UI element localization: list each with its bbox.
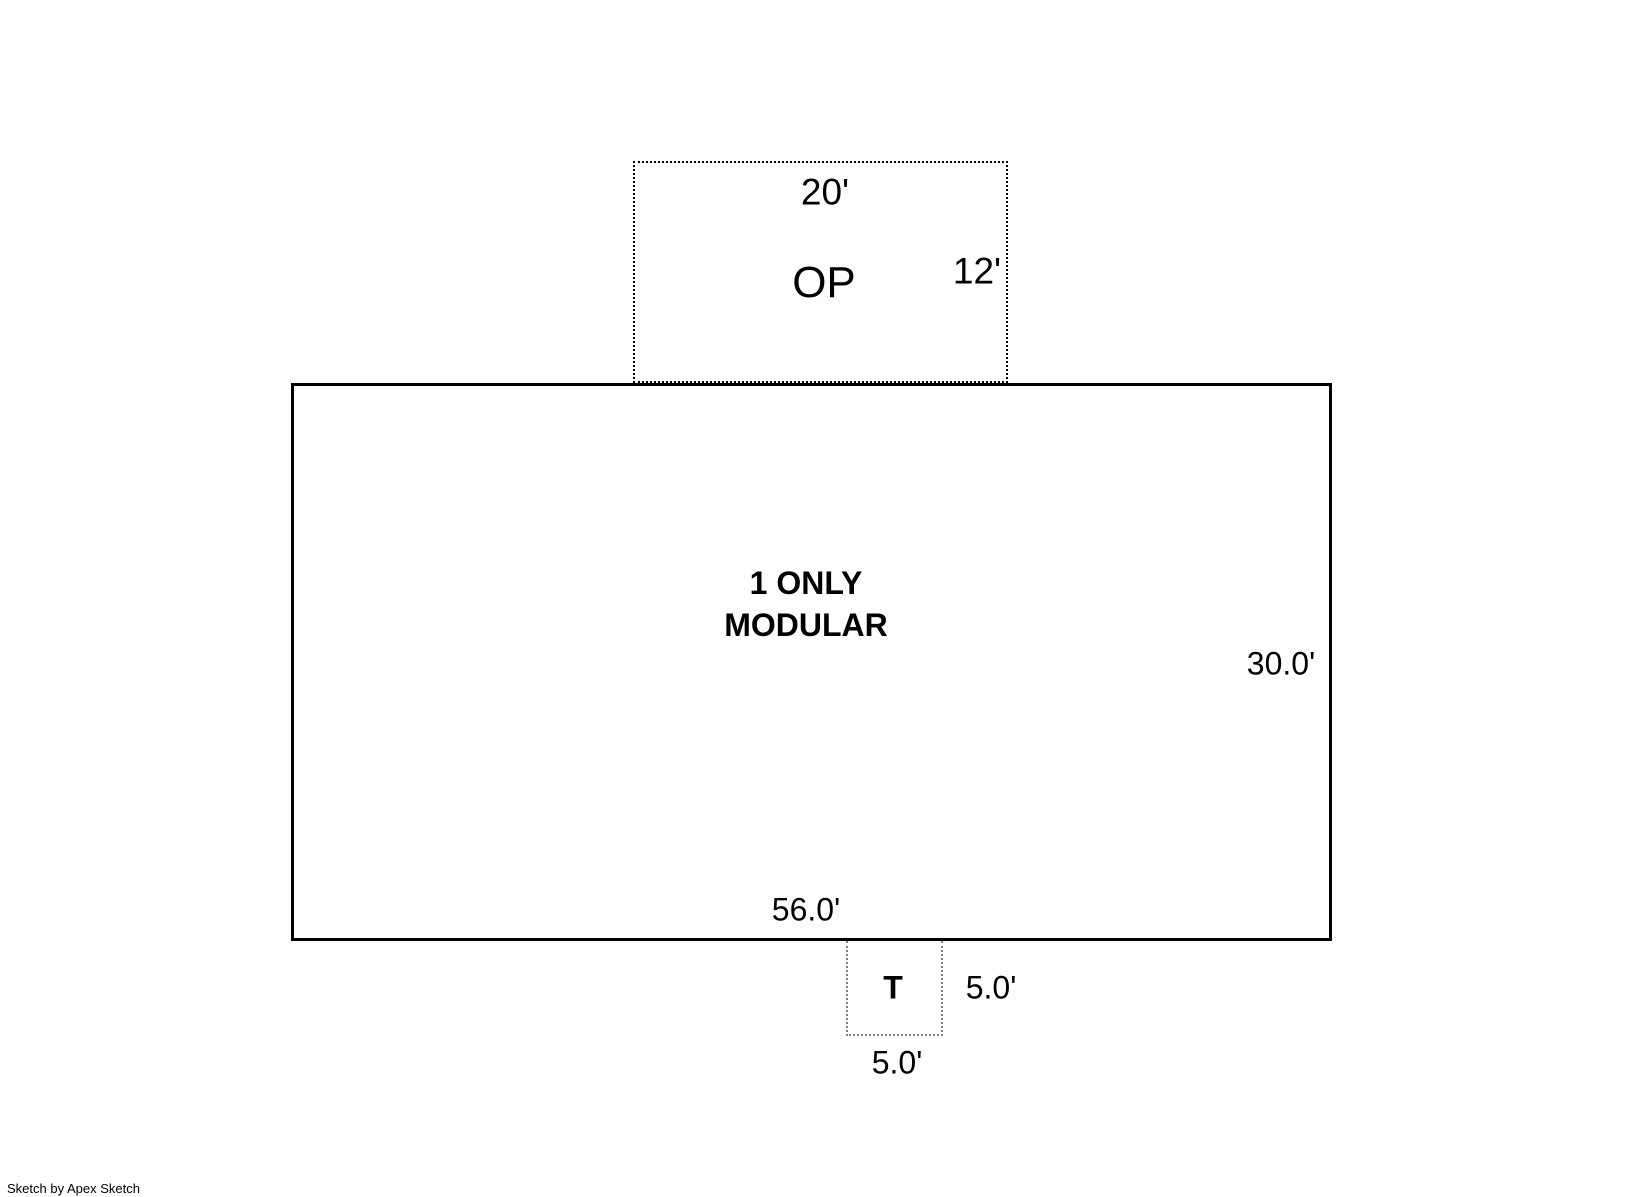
modular-area-outline [291, 383, 1332, 941]
t-area-label: T [883, 970, 903, 1005]
t-width-dimension: 5.0' [872, 1045, 923, 1080]
modular-area-label: 1 ONLY MODULAR [724, 562, 888, 646]
modular-height-dimension: 30.0' [1247, 646, 1315, 681]
modular-width-dimension: 56.0' [772, 892, 840, 927]
op-height-dimension: 12' [953, 252, 1001, 293]
sketch-credit: Sketch by Apex Sketch [7, 1181, 140, 1196]
op-width-dimension: 20' [801, 173, 849, 214]
t-height-dimension: 5.0' [966, 970, 1017, 1005]
modular-area-label-line1: 1 ONLY [724, 562, 888, 604]
modular-area-label-line2: MODULAR [724, 604, 888, 646]
op-area-label: OP [792, 259, 856, 307]
floorplan-canvas: 20' OP 12' 1 ONLY MODULAR 30.0' 56.0' T … [0, 0, 1632, 1197]
